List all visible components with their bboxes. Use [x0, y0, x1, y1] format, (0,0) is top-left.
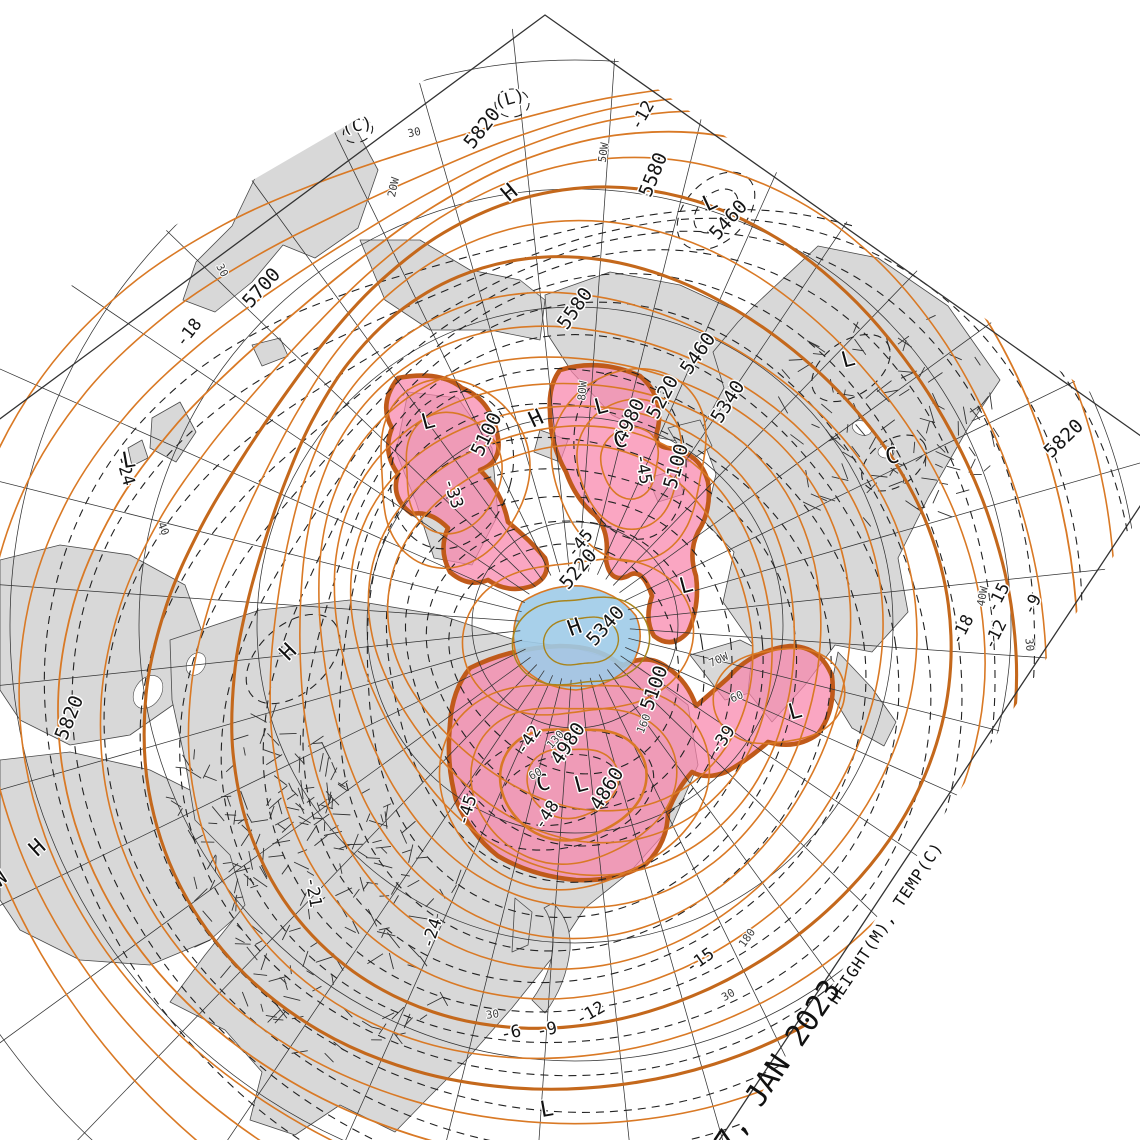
- temp-contour-label: -9: [535, 1018, 559, 1042]
- temp-contour-label: -12: [626, 97, 659, 134]
- temp-contour-label: -18: [172, 315, 207, 352]
- graticule-label: 80W: [575, 380, 590, 401]
- landmass-russia-west: [360, 240, 545, 340]
- weather-map-page: 5820582058205700558055805460546053405340…: [0, 0, 1140, 1140]
- graticule-label: 30: [485, 1007, 500, 1022]
- pressure-center-marker: H: [497, 179, 523, 207]
- temp-contour-label: -6: [499, 1021, 523, 1045]
- units-label: HEIGHT(M), TEMP(C): [824, 838, 947, 1007]
- graticule-label: 50W: [596, 141, 612, 163]
- graticule-label: 20W: [385, 176, 402, 199]
- map-content: 5820582058205700558055805460546053405340…: [0, 0, 1140, 1140]
- graticule-label: 30: [1022, 638, 1036, 652]
- temp-contour-label: (L): [492, 86, 527, 113]
- height-contour-label: 5820: [1040, 415, 1088, 463]
- graticule-label: 30: [406, 125, 422, 140]
- temp-contour-label: -15: [682, 944, 719, 978]
- upper-air-analysis-map: 5820582058205700558055805460546053405340…: [0, 0, 1140, 1140]
- pressure-center-marker: L: [699, 189, 722, 217]
- temp-contour-label: (C): [340, 114, 374, 139]
- graticule-label: 180: [736, 926, 758, 950]
